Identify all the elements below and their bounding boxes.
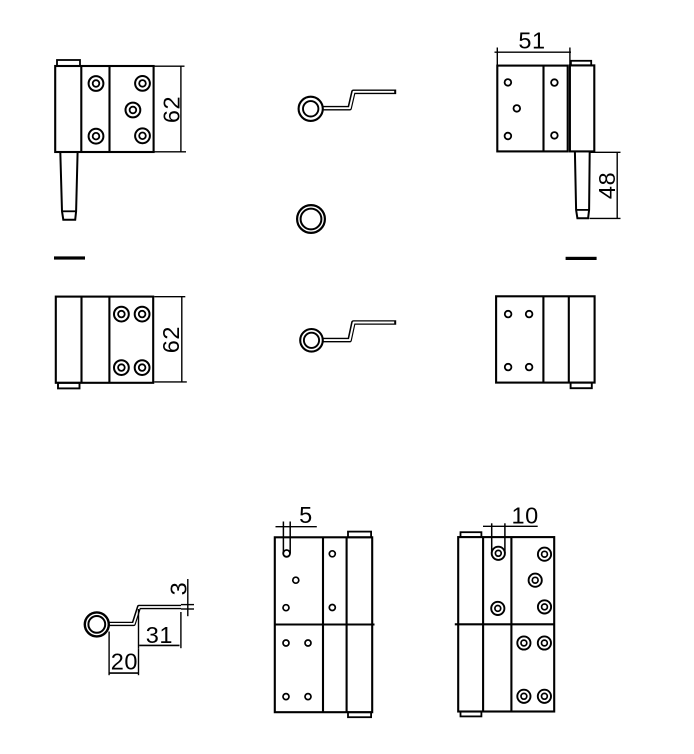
- svg-text:51: 51: [518, 28, 545, 54]
- svg-text:31: 31: [146, 622, 173, 648]
- svg-text:48: 48: [594, 172, 620, 199]
- svg-text:20: 20: [111, 649, 138, 675]
- svg-text:5: 5: [299, 502, 313, 528]
- svg-text:62: 62: [158, 96, 184, 123]
- svg-text:10: 10: [512, 503, 539, 529]
- svg-text:3: 3: [165, 582, 191, 596]
- svg-text:62: 62: [158, 326, 184, 353]
